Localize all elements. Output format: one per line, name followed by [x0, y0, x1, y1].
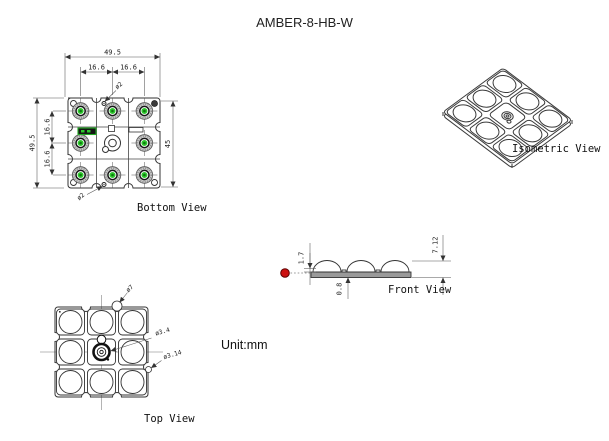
dim-text-center-hole: ø3.4	[154, 327, 171, 338]
page-title: AMBER-8-HB-W	[0, 15, 609, 30]
lens-cell	[88, 369, 116, 395]
dim-text-total-height: 7.12	[432, 237, 440, 254]
fiducial-dot	[59, 311, 61, 313]
center-cell-feature	[88, 335, 116, 365]
pad-callout-circle	[146, 367, 152, 373]
lens-cell	[57, 339, 85, 365]
dim-text-overall-width: 49.5	[104, 49, 121, 57]
drawing-sheet: { "title": "AMBER-8-HB-W", "unit_note": …	[0, 0, 609, 441]
callout-lens-diameter: ø7	[120, 284, 136, 303]
dim-text-hole-bottom: ø2	[76, 192, 86, 202]
lens-cell	[88, 309, 116, 335]
front-view-label: Front View	[388, 284, 451, 296]
dim-text-pitch-right: 16.6	[120, 64, 137, 72]
pcb-board-profile	[311, 272, 411, 278]
top-view-label: Top View	[144, 413, 195, 425]
dim-board-thickness: 0.8	[336, 278, 349, 300]
lens-cell	[57, 309, 85, 335]
isometric-view-label: Isometric View	[512, 143, 601, 155]
center-connector-feature	[103, 126, 121, 153]
bottom-view-label: Bottom View	[137, 202, 207, 214]
lens-cell	[57, 369, 85, 395]
dim-pitch-horizontal: 16.6 16.6	[81, 64, 145, 97]
lens-cell	[119, 369, 147, 395]
hole-bottom-center	[103, 184, 104, 185]
callout-hole-bottom: ø2	[76, 186, 103, 202]
dim-text-standoff: 1.7	[298, 252, 306, 265]
lens-callout-circle	[112, 301, 122, 311]
dim-standoff: 1.7	[298, 243, 317, 285]
lens-cell	[119, 309, 147, 335]
dim-text-hole-span: 45	[164, 140, 172, 148]
dim-text-pitch-bottom: 16.6	[44, 151, 52, 168]
dim-hole-span: 45	[161, 101, 178, 187]
dim-text-lens-diameter: ø7	[125, 284, 135, 294]
dim-text-pitch-top: 16.6	[44, 119, 52, 136]
led-emitter	[131, 130, 157, 156]
dim-text-pad-diameter: ø3.14	[163, 349, 183, 361]
pcb-label	[78, 128, 96, 135]
top-view-drawing: ø7 ø3.4 ø3.14	[30, 275, 230, 425]
corner-hole-filled	[152, 101, 158, 107]
dim-pitch-vertical: 16.6 16.6	[44, 111, 67, 175]
unit-note: Unit:mm	[221, 338, 268, 352]
lens-cell	[119, 339, 147, 365]
corner-hole	[152, 180, 158, 186]
dim-text-pitch-left: 16.6	[88, 64, 105, 72]
bottom-view-drawing: 49.5 16.6 16.6 ø2 49.5 16.6 16.6 45 ø2	[15, 45, 225, 220]
dim-text-overall-height: 49.5	[29, 135, 37, 152]
hole-top-center	[103, 103, 104, 104]
slot-opening	[129, 128, 143, 133]
dim-text-hole-top: ø2	[114, 81, 124, 91]
datum-red-dot	[281, 269, 290, 278]
lens-dome-profiles	[313, 261, 409, 273]
dim-text-board-thickness: 0.8	[336, 283, 344, 296]
